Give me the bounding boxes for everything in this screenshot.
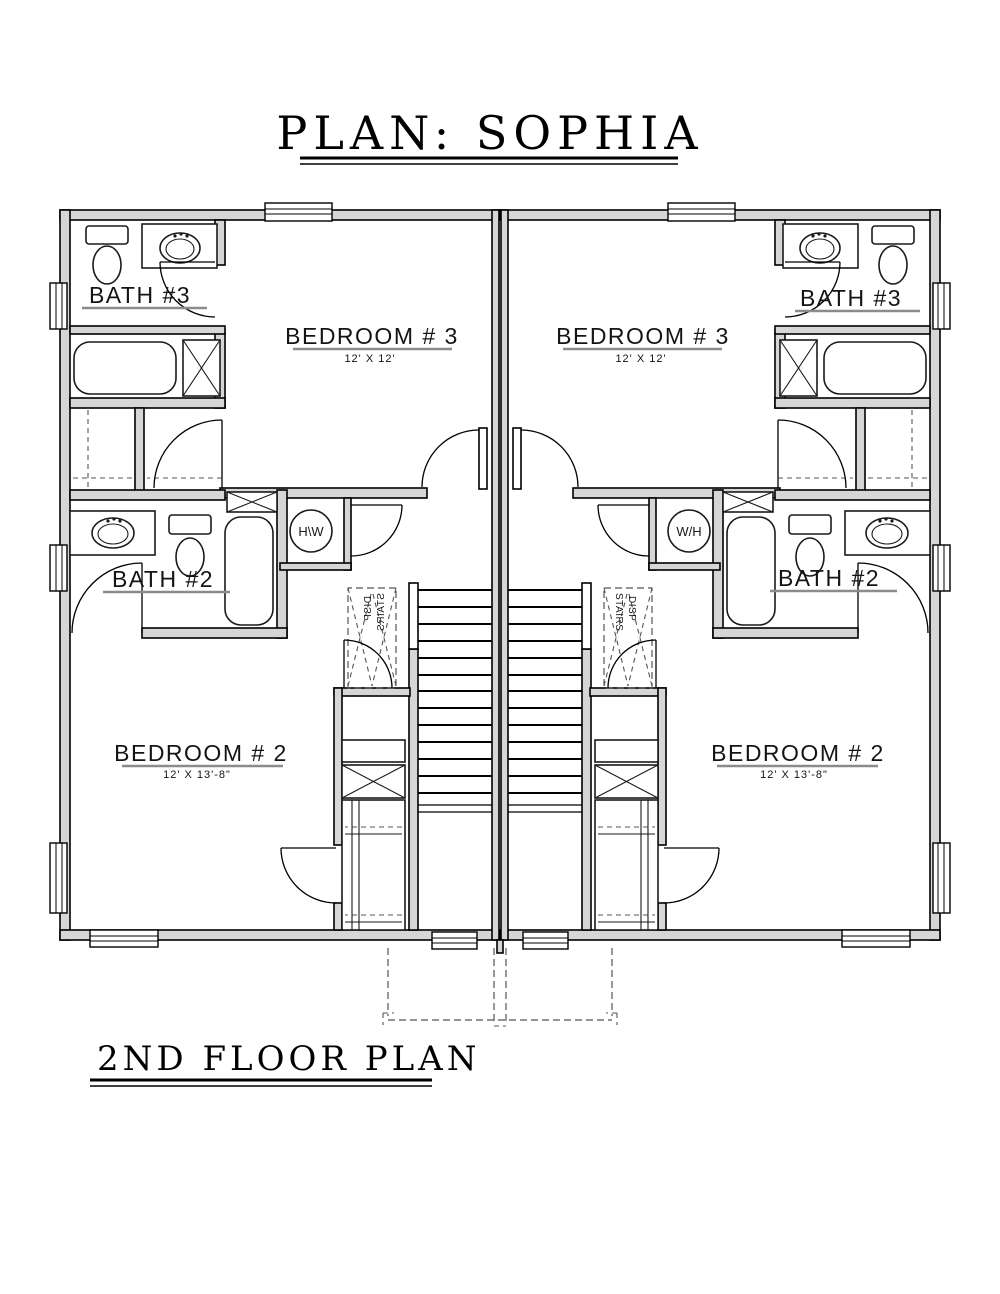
floor-plan-title: 2ND FLOOR PLAN — [97, 1039, 481, 1079]
bedroom2-closets — [342, 740, 405, 930]
bathtub — [225, 517, 273, 625]
linen-closet — [183, 340, 220, 396]
page-title: PLAN: SOPHIA — [276, 106, 703, 160]
stairs-label: STAIRS — [613, 593, 624, 631]
hall-linen-closet — [227, 492, 277, 512]
bathtub — [824, 342, 926, 394]
linen-closet — [780, 340, 817, 396]
bedroom3-dims-right: 12' X 12' — [615, 353, 666, 365]
disappearing-stairs: STAIRS DISP — [348, 588, 396, 688]
disp-label: DISP — [363, 596, 374, 621]
bedroom2-closets — [595, 740, 658, 930]
disappearing-stairs: STAIRS DISP — [604, 588, 652, 688]
stair-newel-post — [409, 583, 418, 649]
door-arc — [521, 430, 578, 487]
bedroom3-label-right: BEDROOM # 3 — [556, 323, 730, 349]
floor-plan-drawing: PLAN: SOPHIA — [0, 0, 1000, 1294]
toilet-bowl — [879, 246, 907, 284]
door-arc — [351, 505, 402, 556]
bathtub — [727, 517, 775, 625]
bedroom3-dims-left: 12' X 12' — [344, 353, 395, 365]
door-arc — [422, 430, 479, 487]
bedroom2-label-left: BEDROOM # 2 — [114, 740, 288, 766]
sheet-title: PLAN: SOPHIA — [276, 106, 703, 164]
bedroom2-dims-right: 12' X 13'-8" — [760, 769, 828, 781]
stairs — [508, 590, 582, 812]
water-heater-label: W/H — [676, 524, 701, 539]
stairs-label: STAIRS — [376, 593, 387, 631]
toilet-tank — [789, 515, 831, 534]
bath3-label-left: BATH #3 — [89, 282, 191, 308]
door-arc — [664, 848, 719, 903]
disp-label: DISP — [626, 596, 637, 621]
floor-plan-sheet: PLAN: SOPHIA — [0, 0, 1000, 1294]
bedroom3-label-left: BEDROOM # 3 — [285, 323, 459, 349]
water-heater: W/H — [290, 510, 332, 552]
stair-newel-post — [582, 583, 591, 649]
toilet-tank — [86, 226, 128, 244]
bath3-fixtures — [72, 224, 222, 488]
door-arc — [608, 640, 656, 688]
door-arc — [281, 848, 336, 903]
door-arc — [598, 505, 649, 556]
door-leaf — [479, 428, 487, 489]
bedroom2-label-right: BEDROOM # 2 — [711, 740, 885, 766]
bath2-label-right: BATH #2 — [778, 565, 880, 591]
bath3-label-right: BATH #3 — [800, 285, 902, 311]
toilet-tank — [169, 515, 211, 534]
door-leaf — [513, 428, 521, 489]
water-heater-label: W/H — [298, 524, 323, 539]
door-arc — [344, 640, 392, 688]
floor-label: 2ND FLOOR PLAN — [90, 1039, 481, 1086]
bath3-fixtures — [778, 224, 928, 488]
bedroom2-dims-left: 12' X 13'-8" — [163, 769, 231, 781]
toilet-bowl — [93, 246, 121, 284]
unit-right: STAIRS DISP W/H — [500, 203, 950, 949]
hall-linen-closet — [723, 492, 773, 512]
toilet-tank — [872, 226, 914, 244]
bath2-label-left: BATH #2 — [112, 566, 214, 592]
water-heater: W/H — [668, 510, 710, 552]
bathtub — [74, 342, 176, 394]
porch-outline — [383, 940, 617, 1026]
stairs — [418, 590, 492, 812]
